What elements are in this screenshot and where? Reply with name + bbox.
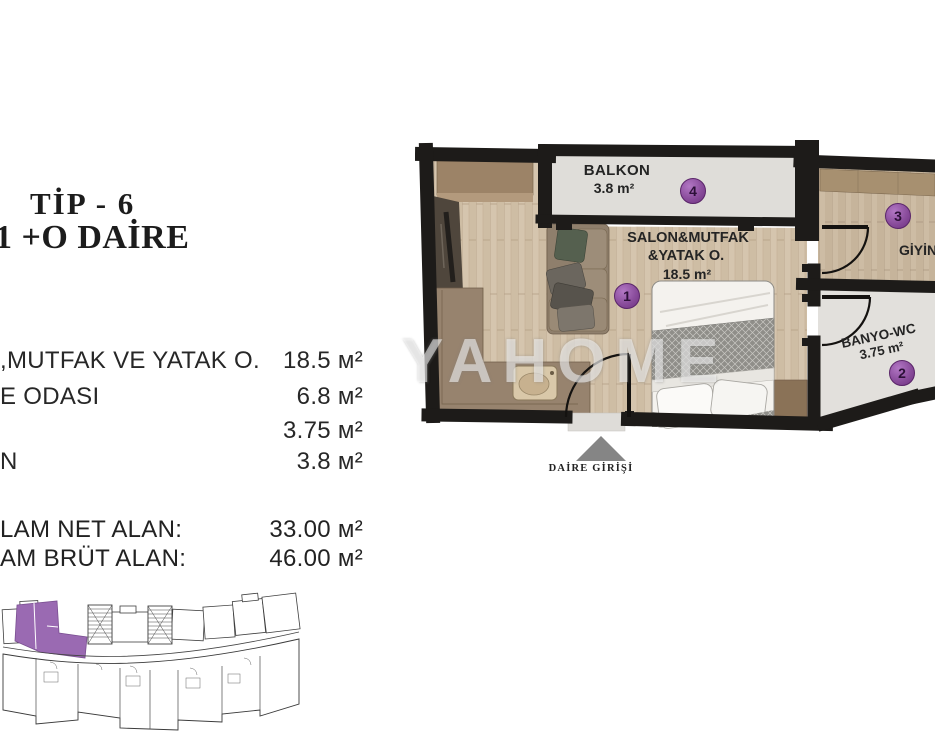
- room-label: E ODASI: [0, 383, 99, 411]
- room-number-badge-3: 3: [885, 203, 911, 229]
- room-area: 18.5 м²: [283, 347, 363, 375]
- room-area: 3.8 м²: [297, 448, 363, 476]
- room-list-row: ,MUTFAK VE YATAK O. 18.5 м²: [0, 347, 363, 375]
- room-number-badge-4: 4: [680, 178, 706, 204]
- gross-area-row: AM BRÜT ALAN: 46.00 м²: [0, 545, 363, 573]
- highlighted-unit: [15, 601, 87, 658]
- net-area-label: LAM NET ALAN:: [0, 516, 182, 544]
- room-area: 6.8 м²: [297, 383, 363, 411]
- gross-area-value: 46.00 м²: [269, 545, 363, 573]
- room-label: N: [0, 448, 18, 476]
- dressing-wardrobe: [820, 169, 935, 196]
- room-area: 3.75 м²: [283, 417, 363, 445]
- balcony-label: BALKON: [572, 162, 662, 179]
- room-number-badge-2: 2: [889, 360, 915, 386]
- room-list-row: 3.75 м²: [0, 417, 363, 445]
- salon-label-line1: SALON&MUTFAK: [627, 230, 749, 247]
- room-list-row: E ODASI 6.8 м²: [0, 383, 363, 411]
- sofa: [545, 224, 609, 334]
- floorplan-page: { "colors": { "accent_purple_circle": "#…: [0, 0, 935, 735]
- entrance-threshold: [568, 413, 625, 431]
- balcony-area: 3.8 m²: [572, 180, 656, 196]
- gross-area-label: AM BRÜT ALAN:: [0, 545, 186, 573]
- apartment-floorplan: [415, 135, 935, 480]
- kitchen-upper-cabinet: [437, 157, 533, 195]
- salon-area: 18.5 m²: [630, 266, 744, 282]
- net-area-value: 33.00 м²: [269, 516, 363, 544]
- room-list-row: N 3.8 м²: [0, 448, 363, 476]
- salon-label-line2: &YATAK O.: [627, 248, 745, 265]
- entrance-arrow: [576, 436, 626, 461]
- double-bed: [652, 281, 774, 429]
- room-label: ,MUTFAK VE YATAK O.: [0, 347, 260, 375]
- unit-type-title: TİP - 6: [30, 186, 135, 222]
- dressing-room-label: GİYİNM: [899, 242, 935, 258]
- entrance-label: DAİRE GİRİŞİ: [546, 463, 636, 474]
- room-number-badge-1: 1: [614, 283, 640, 309]
- unit-layout-title: 1 +O DAİRE: [0, 219, 189, 257]
- building-key-plan: [0, 592, 302, 735]
- net-area-row: LAM NET ALAN: 33.00 м²: [0, 516, 363, 544]
